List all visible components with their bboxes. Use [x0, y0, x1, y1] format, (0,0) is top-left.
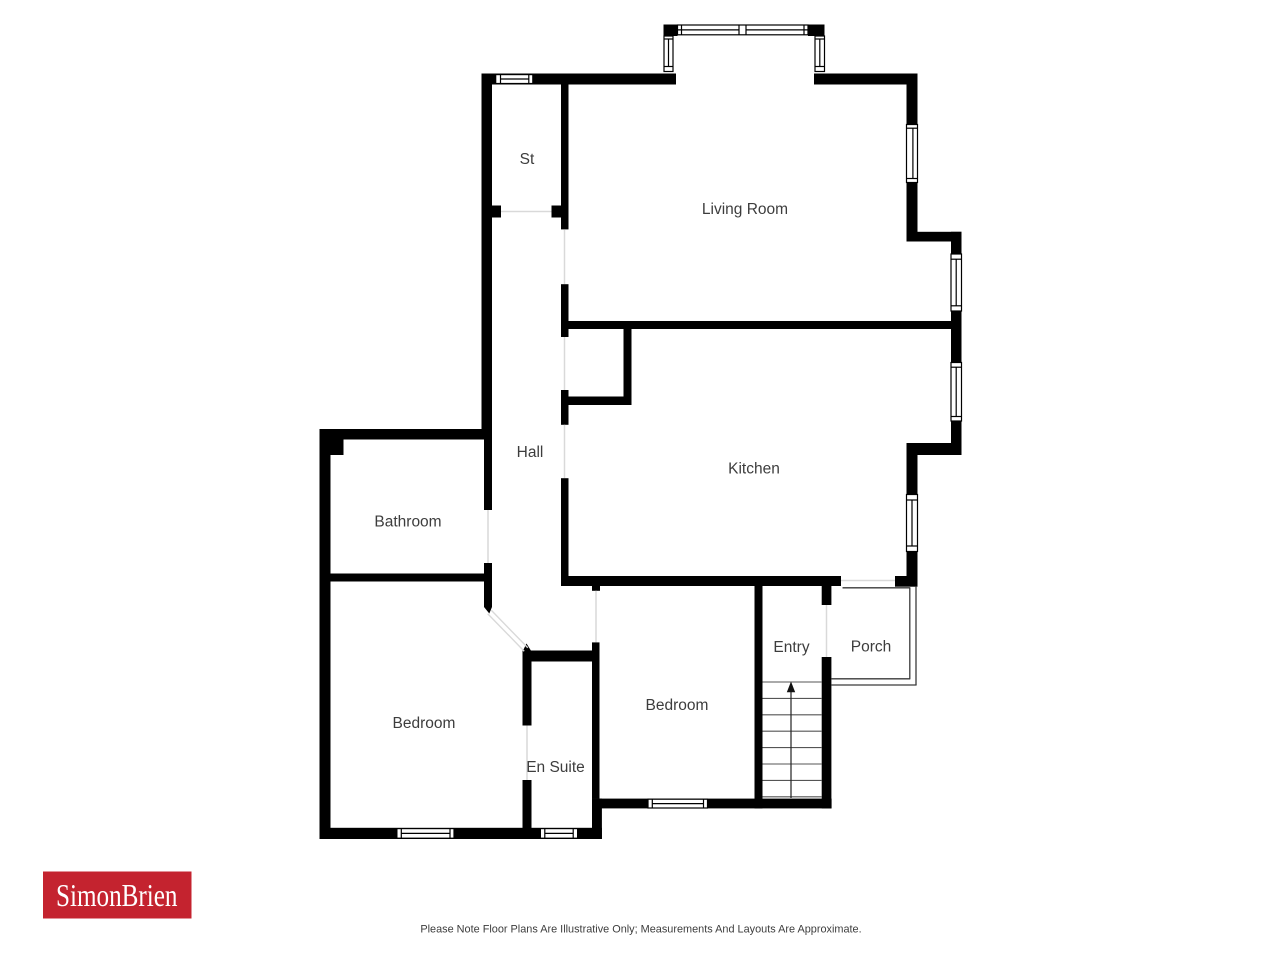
svg-text:Entry: Entry: [773, 639, 809, 656]
svg-text:St: St: [520, 151, 535, 168]
svg-text:Bedroom: Bedroom: [646, 697, 709, 714]
svg-text:Please Note Floor Plans Are Il: Please Note Floor Plans Are Illustrative…: [420, 924, 861, 936]
svg-text:SimonBrien: SimonBrien: [56, 877, 178, 913]
svg-text:Bathroom: Bathroom: [374, 514, 441, 531]
svg-text:Bedroom: Bedroom: [393, 715, 456, 732]
svg-text:En Suite: En Suite: [526, 759, 585, 776]
svg-text:Living Room: Living Room: [702, 201, 788, 218]
svg-text:Hall: Hall: [517, 444, 544, 461]
svg-text:Porch: Porch: [851, 639, 892, 656]
svg-text:Kitchen: Kitchen: [728, 461, 780, 478]
